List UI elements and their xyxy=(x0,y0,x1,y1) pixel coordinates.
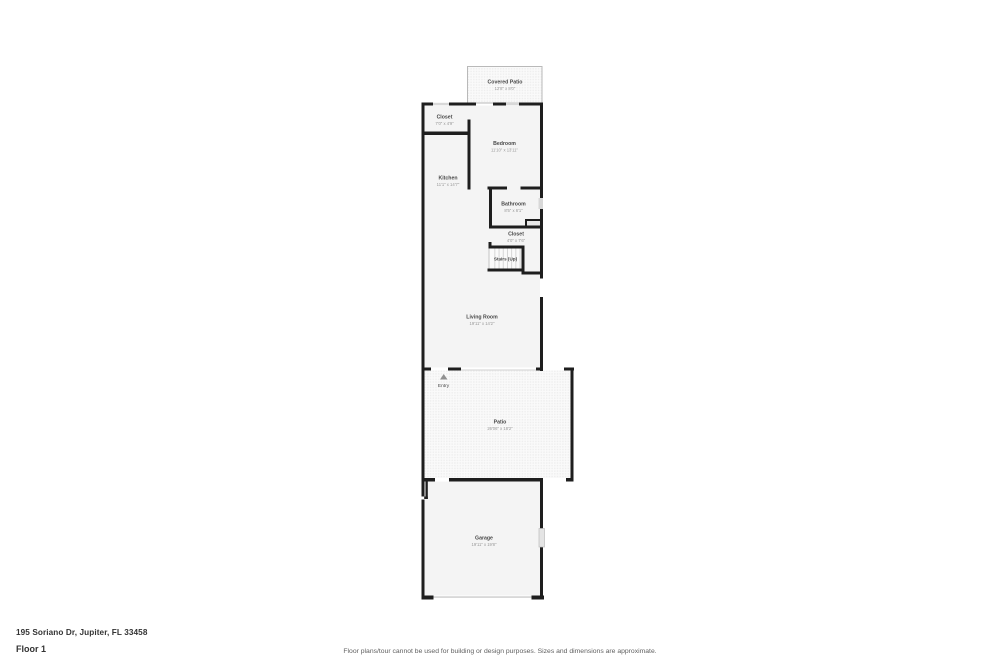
svg-text:Garage: Garage xyxy=(475,536,493,542)
svg-text:Entry: Entry xyxy=(438,383,450,389)
svg-text:26'06" x 18'2": 26'06" x 18'2" xyxy=(487,426,513,431)
svg-text:11'1" x 14'7": 11'1" x 14'7" xyxy=(437,182,460,187)
svg-text:12'8" x 8'0": 12'8" x 8'0" xyxy=(495,86,516,91)
svg-text:Covered Patio: Covered Patio xyxy=(488,80,523,86)
svg-text:8'5" x 6'1": 8'5" x 6'1" xyxy=(504,208,523,213)
svg-text:Closet: Closet xyxy=(437,115,453,121)
svg-text:Stairs (Up): Stairs (Up) xyxy=(494,257,518,262)
svg-text:Kitchen: Kitchen xyxy=(438,176,457,182)
svg-text:Bedroom: Bedroom xyxy=(493,141,516,147)
svg-text:Bathroom: Bathroom xyxy=(501,202,526,208)
svg-text:Patio: Patio xyxy=(494,420,507,426)
svg-text:19'11" x 19'8": 19'11" x 19'8" xyxy=(472,542,497,547)
svg-text:4'0" x 7'6": 4'0" x 7'6" xyxy=(507,238,526,243)
svg-text:11'10" x 13'11": 11'10" x 13'11" xyxy=(491,147,519,152)
svg-text:19'11" x 14'2": 19'11" x 14'2" xyxy=(470,321,495,326)
svg-text:Closet: Closet xyxy=(508,232,524,238)
svg-text:7'0" x 4'9": 7'0" x 4'9" xyxy=(435,121,454,126)
svg-text:Living Room: Living Room xyxy=(466,315,498,321)
